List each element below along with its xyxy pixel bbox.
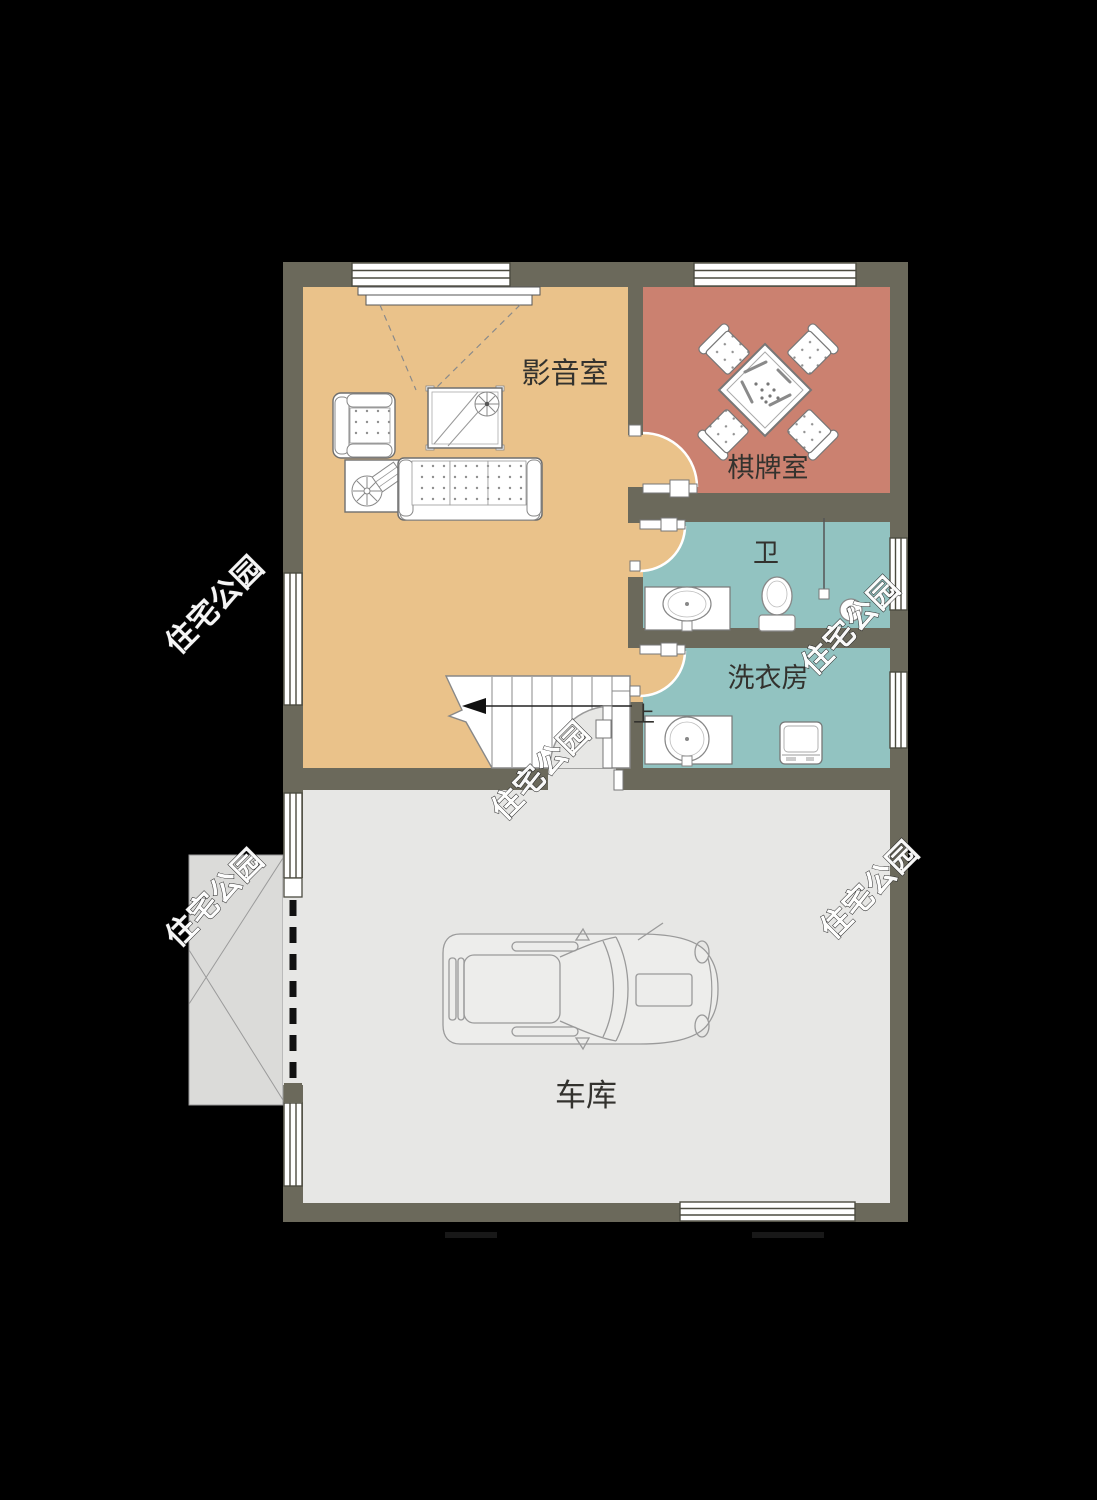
toilet [759,577,795,631]
coffee-table [426,386,504,450]
garage-roller-door [283,878,303,1103]
room-label-chess: 棋牌室 [728,453,809,484]
car [443,923,718,1049]
floor-plan-drawing: 影音室 棋牌室 卫 洗衣房 车库 上 住宅公园 住宅公园 住宅公园 住宅公园 住… [0,0,1097,1500]
window-garage-left-upper [284,793,302,878]
floor-plan-canvas: 影音室 棋牌室 卫 洗衣房 车库 上 住宅公园 住宅公园 住宅公园 住宅公园 住… [0,0,1097,1500]
doorway-chess [628,435,643,487]
window-left-media [284,573,302,705]
vanity-sink [645,587,730,631]
sofa [398,458,542,520]
table-plant [475,392,499,416]
window-right-laundry [890,672,907,748]
room-label-media: 影音室 [521,356,608,390]
window-garage-bottom [680,1202,855,1221]
room-label-laundry: 洗衣房 [728,663,809,694]
room-label-garage: 车库 [555,1078,617,1114]
window-top-media [352,263,510,286]
washing-machine [780,722,822,764]
stairs-up-label: 上 [633,703,655,728]
window-top-chess [694,263,856,286]
room-label-bath: 卫 [753,539,779,569]
laundry-sink [645,716,732,766]
window-garage-left-lower [284,1103,302,1186]
armchair [333,393,395,458]
